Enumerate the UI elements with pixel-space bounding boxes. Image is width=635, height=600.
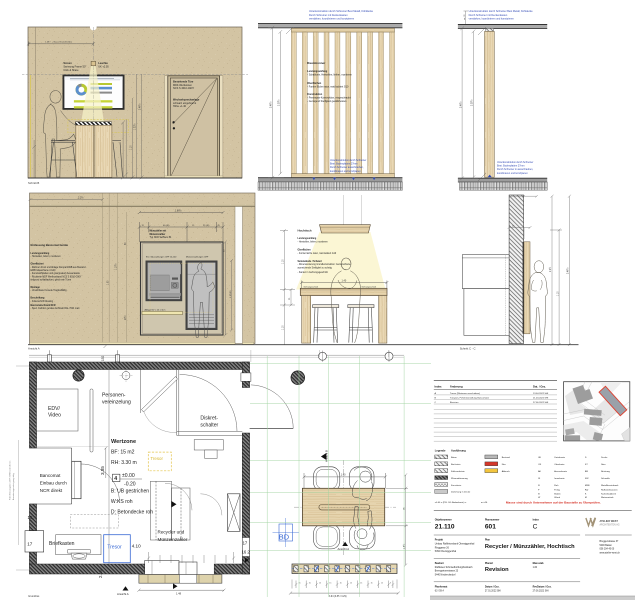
- svg-text:- Herstellen, liefern, montier: - Herstellen, liefern, montieren: [31, 255, 62, 258]
- svg-text:Abbruch: Abbruch: [502, 470, 511, 473]
- svg-text:Tresor (Wertzone verschieben): Tresor (Wertzone verschieben): [450, 392, 480, 395]
- svg-text:- Rückseite MDF Wertkostband N: - Rückseite MDF Wertkostband NCS S 6010-…: [31, 275, 82, 278]
- svg-text:Briefkasten: Briefkasten: [49, 541, 75, 547]
- svg-text:BR: BR: [585, 471, 588, 473]
- svg-text:Personen-: Personen-: [102, 393, 126, 399]
- svg-text:Index: Index: [533, 518, 540, 521]
- svg-text:Datum / Gez.: Datum / Gez.: [485, 585, 500, 588]
- svg-text:Masse sind durch Unternehmer a: Masse sind durch Unternehmer auf der Bau…: [506, 500, 601, 504]
- svg-text:1.48: 1.48: [176, 592, 182, 596]
- svg-text:60: 60: [125, 242, 127, 245]
- svg-text:Oberflächen: Oberflächen: [298, 248, 312, 251]
- svg-text:Massstab: Massstab: [533, 562, 544, 565]
- svg-text:60 (40): 60 (40): [163, 225, 170, 227]
- svg-text:Bancomat: Bancomat: [40, 473, 61, 478]
- svg-text:OK: OK: [538, 464, 542, 466]
- svg-text:Brüstung: Brüstung: [601, 470, 611, 473]
- svg-text:www.atelier-west.ch: www.atelier-west.ch: [600, 551, 621, 554]
- svg-text:Ansicht A: Ansicht A: [28, 346, 40, 350]
- svg-text:2.15: 2.15: [98, 569, 103, 578]
- svg-text:21.04.2022 SHI: 21.04.2022 SHI: [533, 398, 549, 400]
- svg-text:Beschriftung: Beschriftung: [31, 297, 46, 300]
- svg-text:Durch Schreiner mit Deckenkast: Durch Schreiner mit Deckenkasten: [309, 14, 348, 17]
- svg-text:9: 9: [390, 582, 391, 584]
- svg-text:1.90: 1.90: [107, 280, 109, 285]
- svg-text:- Furnier Eiche natur, matt la: - Furnier Eiche natur, matt lackiert G10: [298, 252, 337, 255]
- svg-text:Türspion, Führleistestellung B: Türspion, Führleistestellung Bancomater: [450, 397, 490, 400]
- svg-text:Falls Massangaben CHF / BSR ko: Falls Massangaben CHF / BSR kontrolliere…: [9, 461, 12, 500]
- svg-text:16 2: 16 2: [242, 550, 251, 555]
- svg-text:Schwelle: Schwelle: [601, 478, 611, 480]
- svg-text:ATELIER WEST: ATELIER WEST: [600, 520, 619, 523]
- svg-text:- Schablone, Herstellen, liefe: - Schablone, Herstellen, liefern, montie…: [307, 74, 352, 77]
- svg-text:Änderung: Änderung: [450, 385, 463, 389]
- svg-text:52 (40): 52 (40): [203, 225, 210, 227]
- svg-text:3.85: 3.85: [100, 466, 105, 475]
- svg-text:1.6/500: 1.6/500: [230, 290, 232, 298]
- svg-text:RevDatum / Gez.: RevDatum / Gez.: [533, 585, 552, 588]
- svg-text:Kalksandstein: Kalksandstein: [451, 470, 465, 473]
- svg-text:1.10: 1.10: [283, 325, 285, 330]
- svg-text:schalter: schalter: [200, 423, 218, 429]
- svg-text:Seitenwände / Schwert: Seitenwände / Schwert: [298, 260, 323, 263]
- svg-text:EWB Glasschiene 4 G10: EWB Glasschiene 4 G10: [31, 270, 57, 272]
- svg-text:Montage: Montage: [31, 286, 41, 289]
- svg-text:Durch Schreiner mit Deckenkast: Durch Schreiner mit Deckenkasten: [469, 14, 508, 17]
- svg-text:Boden: Boden: [554, 493, 561, 495]
- svg-text:- Rahmen Front und Ablage Duro: - Rahmen Front und Ablage Duropal EWB au…: [31, 266, 87, 269]
- svg-text:17: 17: [243, 541, 248, 546]
- svg-text:NCS S 4010-G90Y: NCS S 4010-G90Y: [173, 87, 194, 90]
- svg-text:Revision: Revision: [485, 567, 509, 573]
- svg-text:- Furnier Eiche natur, matt la: - Furnier Eiche natur, matt lackiert G10: [307, 86, 349, 89]
- svg-text:Plannummer: Plannummer: [485, 518, 500, 521]
- svg-text:ARCHITEKTEN AG: ARCHITEKTEN AG: [600, 524, 620, 527]
- svg-text:- Folienschrift Messing: - Folienschrift Messing: [31, 300, 54, 303]
- svg-text:W:KS roh: W:KS roh: [111, 499, 133, 505]
- svg-text:Einbau durch: Einbau durch: [40, 481, 68, 486]
- svg-text:Bancomatschrank NCR: Bancomatschrank NCR: [31, 304, 56, 307]
- svg-text:Click & Share: Click & Share: [63, 69, 79, 72]
- svg-text:Innerkante: Innerkante: [554, 477, 565, 480]
- svg-text:Durch Schreiner in ausschraube: Durch Schreiner in ausschrauben,: [497, 168, 533, 171]
- svg-text:Wertzone: Wertzone: [111, 439, 136, 445]
- svg-text:verstärken, koordinieren und k: verstärken, koordinieren und konzipieren: [309, 17, 355, 20]
- svg-text:C: C: [533, 524, 538, 531]
- svg-text:Leistungsumfang: Leistungsumfang: [31, 252, 50, 255]
- svg-text:Dämmung in Decke: Dämmung in Decke: [451, 492, 471, 494]
- svg-text:1.40: 1.40: [342, 279, 347, 282]
- svg-text:Unterkonstruktion durch Schrei: Unterkonstruktion durch Schreiner: [330, 159, 366, 162]
- svg-text:Diskret-: Diskret-: [200, 416, 218, 422]
- svg-text:vereinzelung: vereinzelung: [102, 400, 131, 406]
- svg-text:Raumtrenner: Raumtrenner: [307, 61, 326, 65]
- svg-text:Aussenkante: Aussenkante: [554, 470, 567, 473]
- svg-text:27.01.2022 SHI: 27.01.2022 SHI: [485, 590, 501, 592]
- svg-text:15: 15: [350, 582, 352, 584]
- svg-text:Tresor: Tresor: [150, 456, 163, 461]
- svg-text:UK: UK: [538, 457, 542, 459]
- svg-text:Index: Index: [435, 385, 443, 389]
- svg-text:Env / Auszahlungen CHF 10-100: Env / Auszahlungen CHF 10-100: [146, 256, 177, 259]
- svg-text:Bauherr: Bauherr: [435, 562, 444, 565]
- svg-text:Bestand: Bestand: [502, 456, 511, 459]
- svg-text:±0.00 = (P.B. OG Bodenkante) =: ±0.00 = (P.B. OG Bodenkante) =: [435, 501, 467, 504]
- svg-text:tiefgrund schlablackiert, glei: tiefgrund schlablackiert, gleich wie Tür…: [31, 279, 72, 282]
- svg-text:Münzeinzahlungen CHF: Münzeinzahlungen CHF: [186, 257, 209, 259]
- svg-text:Ansicht A: Ansicht A: [117, 592, 129, 596]
- svg-text:15: 15: [340, 582, 342, 584]
- svg-text:15: 15: [28, 515, 33, 520]
- svg-text:Ringgasse 26: Ringgasse 26: [435, 547, 450, 549]
- svg-text:Ausnahmegenehmigung nötig: Ausnahmegenehmigung nötig: [12, 473, 15, 500]
- svg-text:m ü.M.: m ü.M.: [481, 502, 488, 504]
- svg-text:EDV/: EDV/: [48, 406, 60, 412]
- svg-text:15: 15: [360, 582, 362, 584]
- svg-text:Best. Bodenplatten 27mm: Best. Bodenplatten 27mm: [330, 163, 358, 166]
- svg-text:verstärken, koordinieren und k: verstärken, koordinieren und konzipieren: [469, 17, 515, 20]
- svg-text:Backstein: Backstein: [451, 463, 461, 466]
- svg-text:- Kanten in Gehrungsgeschnitt: - Kanten in Gehrungsgeschnitt: [298, 271, 329, 274]
- svg-text:152: 152: [101, 355, 105, 361]
- svg-text:Best. Bodenplatten 27mm: Best. Bodenplatten 27mm: [497, 165, 525, 168]
- svg-text:Grundriss: Grundriss: [28, 594, 40, 598]
- svg-text:Oberkante: Oberkante: [554, 463, 565, 466]
- svg-text:RH: 3.30 m: RH: 3.30 m: [111, 460, 137, 466]
- svg-text:Stirn: Stirn: [601, 463, 606, 466]
- svg-text:Dat. / Gez.: Dat. / Gez.: [533, 385, 546, 389]
- svg-text:Typ NCR SelfServ 84: Typ NCR SelfServ 84: [150, 236, 173, 239]
- svg-text:Schnitt C - C: Schnitt C - C: [460, 346, 476, 350]
- svg-text:Ablage 60° x 15 x 3cm: Ablage 60° x 15 x 3cm: [145, 308, 166, 311]
- svg-text:Einfassung Bancomat Geräte: Einfassung Bancomat Geräte: [31, 243, 69, 247]
- svg-text:056 204 45 00: 056 204 45 00: [600, 549, 615, 551]
- svg-text:27.06.2022 SHI: 27.06.2022 SHI: [533, 590, 549, 592]
- svg-text:4: 4: [114, 476, 117, 482]
- svg-text:2.2½: 2.2½: [78, 196, 83, 200]
- svg-text:5400 Baden: 5400 Baden: [600, 545, 613, 547]
- svg-text:D: Betondecke roh: D: Betondecke roh: [111, 510, 153, 516]
- svg-text:NCR direkt: NCR direkt: [40, 488, 63, 493]
- svg-text:Video: Video: [48, 413, 61, 419]
- svg-text:Plan: Plan: [485, 539, 491, 542]
- svg-text:Unterkante: Unterkante: [554, 456, 565, 459]
- svg-text:15: 15: [381, 582, 383, 584]
- svg-text:Recycler / Münzzähler, Hochtis: Recycler / Münzzähler, Hochtisch: [485, 544, 575, 550]
- svg-text:Wärmedämmung: Wärmedämmung: [451, 477, 469, 480]
- svg-text:15: 15: [309, 582, 311, 584]
- svg-text:15: 15: [329, 582, 331, 584]
- svg-text:Oberflächen: Oberflächen: [31, 263, 45, 266]
- svg-text:13.04.2022 SHI: 13.04.2022 SHI: [533, 393, 549, 395]
- svg-text:Kunststein: Kunststein: [451, 484, 462, 487]
- svg-text:1.10: 1.10: [557, 291, 559, 296]
- svg-text:Höhe +1.40: Höhe +1.40: [173, 105, 187, 108]
- svg-text:4.10: 4.10: [132, 544, 141, 549]
- svg-text:17: 17: [27, 542, 33, 547]
- svg-text:Fertig: Fertig: [554, 488, 560, 491]
- svg-text:Ausführung: Ausführung: [451, 448, 466, 452]
- svg-text:Hochtisch: Hochtisch: [298, 229, 312, 233]
- svg-text:ca. 30: ca. 30: [464, 14, 466, 20]
- svg-text:BF: 15 m2: BF: 15 m2: [111, 450, 135, 456]
- svg-text:Planformat: Planformat: [435, 585, 448, 588]
- svg-text:1.10: 1.10: [283, 259, 285, 264]
- svg-text:Bruggerstrasse 37: Bruggerstrasse 37: [600, 540, 619, 543]
- svg-text:B: UB gestrichen: B: UB gestrichen: [111, 489, 149, 495]
- svg-text:Planart: Planart: [485, 562, 493, 565]
- svg-text:Münzeinzahler: Münzeinzahler: [150, 234, 166, 236]
- svg-text:±0.00: ±0.00: [122, 473, 135, 479]
- svg-text:Metallfensterbank: Metallfensterbank: [601, 484, 619, 487]
- svg-text:Projekt: Projekt: [435, 539, 443, 542]
- svg-text:- Genügend Steifigkeit gewährl: - Genügend Steifigkeit gewährleisten: [307, 100, 347, 103]
- svg-text:- Unsichtbare Konsole Tragfest: - Unsichtbare Konsole Tragfestflällig: [31, 289, 68, 292]
- svg-text:-0.20: -0.20: [124, 482, 136, 488]
- svg-text:- Spez. Farbton gemäss Archite: - Spez. Farbton gemäss Architekt RAL 702…: [31, 307, 80, 310]
- svg-text:1:20: 1:20: [533, 567, 538, 569]
- svg-text:Kurbelstabbrett: Kurbelstabbrett: [601, 492, 616, 495]
- svg-text:Münzeinzahler: Münzeinzahler: [158, 537, 188, 542]
- svg-text:Legende: Legende: [435, 448, 446, 452]
- svg-text:Raffamellastoren: Raffamellastoren: [601, 488, 618, 491]
- svg-text:- Dimensionierung Grundkonstru: - Dimensionierung Grundkonstruktion: Ger…: [298, 263, 352, 266]
- svg-text:Beton: Beton: [451, 456, 457, 459]
- svg-text:Unterkonstruktion durch Schrei: Unterkonstruktion durch Schreiner: [497, 161, 533, 164]
- svg-text:BD: BD: [279, 533, 289, 542]
- svg-text:63 / 59.4: 63 / 59.4: [435, 590, 445, 592]
- svg-text:koordinieren und konzipieren: koordinieren und konzipieren: [497, 172, 528, 175]
- svg-text:- Herstellen, liefern, montier: - Herstellen, liefern, montieren: [298, 240, 329, 243]
- svg-text:Objektnummer: Objektnummer: [435, 518, 452, 521]
- svg-text:3.94 (3.85 / 3.29): 3.94 (3.85 / 3.29): [329, 596, 347, 598]
- svg-text:Raiffeisen Schmiedfurtburg/Fel: Raiffeisen Schmiedfurtburg/Felsbach: [435, 566, 473, 569]
- svg-text:MFB: MFB: [585, 485, 590, 487]
- svg-text:1.10: 1.10: [131, 145, 133, 150]
- svg-text:UK +2.05: UK +2.05: [98, 66, 109, 69]
- svg-text:ausreichende Steifigkeit zu sc: ausreichende Steifigkeit zu schräg: [298, 267, 333, 270]
- svg-text:koordinieren und konzipieren: koordinieren und konzipieren: [330, 170, 361, 173]
- svg-text:5440 Niederrohrdorf: 5440 Niederrohrdorf: [435, 574, 456, 577]
- svg-text:5452 Obersiggenthal: 5452 Obersiggenthal: [435, 550, 457, 553]
- svg-text:15: 15: [319, 582, 321, 584]
- svg-text:Recycler und: Recycler und: [158, 530, 185, 535]
- svg-text:Leistungsumfang: Leistungsumfang: [298, 237, 317, 240]
- svg-text:Wand: Wand: [554, 497, 560, 499]
- svg-text:Münzzähler mit: Münzzähler mit: [150, 230, 167, 233]
- svg-text:1.40: 1.40: [341, 474, 346, 477]
- svg-text:Umbau Raiffeisenbank Obersigge: Umbau Raiffeisenbank Obersiggenthal: [435, 543, 475, 546]
- svg-text:Motorantrieb: Motorantrieb: [601, 496, 614, 499]
- svg-text:21.110: 21.110: [435, 524, 455, 531]
- svg-text:Durch Schreiner ausschrauben,: Durch Schreiner ausschrauben,: [330, 166, 364, 169]
- svg-text:Tresor: Tresor: [107, 545, 122, 551]
- svg-text:- Kunststoffplatten und grau(p: - Kunststoffplatten und grau(podest) Aus…: [31, 272, 81, 275]
- svg-text:Bremgartnerstrasse 23: Bremgartnerstrasse 23: [435, 570, 459, 573]
- svg-text:Raf: Raf: [585, 489, 589, 491]
- svg-text:Schnitt B: Schnitt B: [28, 181, 39, 185]
- svg-text:M: M: [585, 497, 587, 499]
- svg-text:Unterkonstruktion durch Schrei: Unterkonstruktion durch Schreiner Best M…: [469, 10, 534, 13]
- svg-text:Decke: Decke: [601, 457, 608, 459]
- svg-text:Unterkonstruktion durch Schrei: Unterkonstruktion durch Schreiner Best M…: [309, 10, 374, 13]
- svg-text:15: 15: [371, 582, 373, 584]
- svg-text:601: 601: [485, 524, 496, 531]
